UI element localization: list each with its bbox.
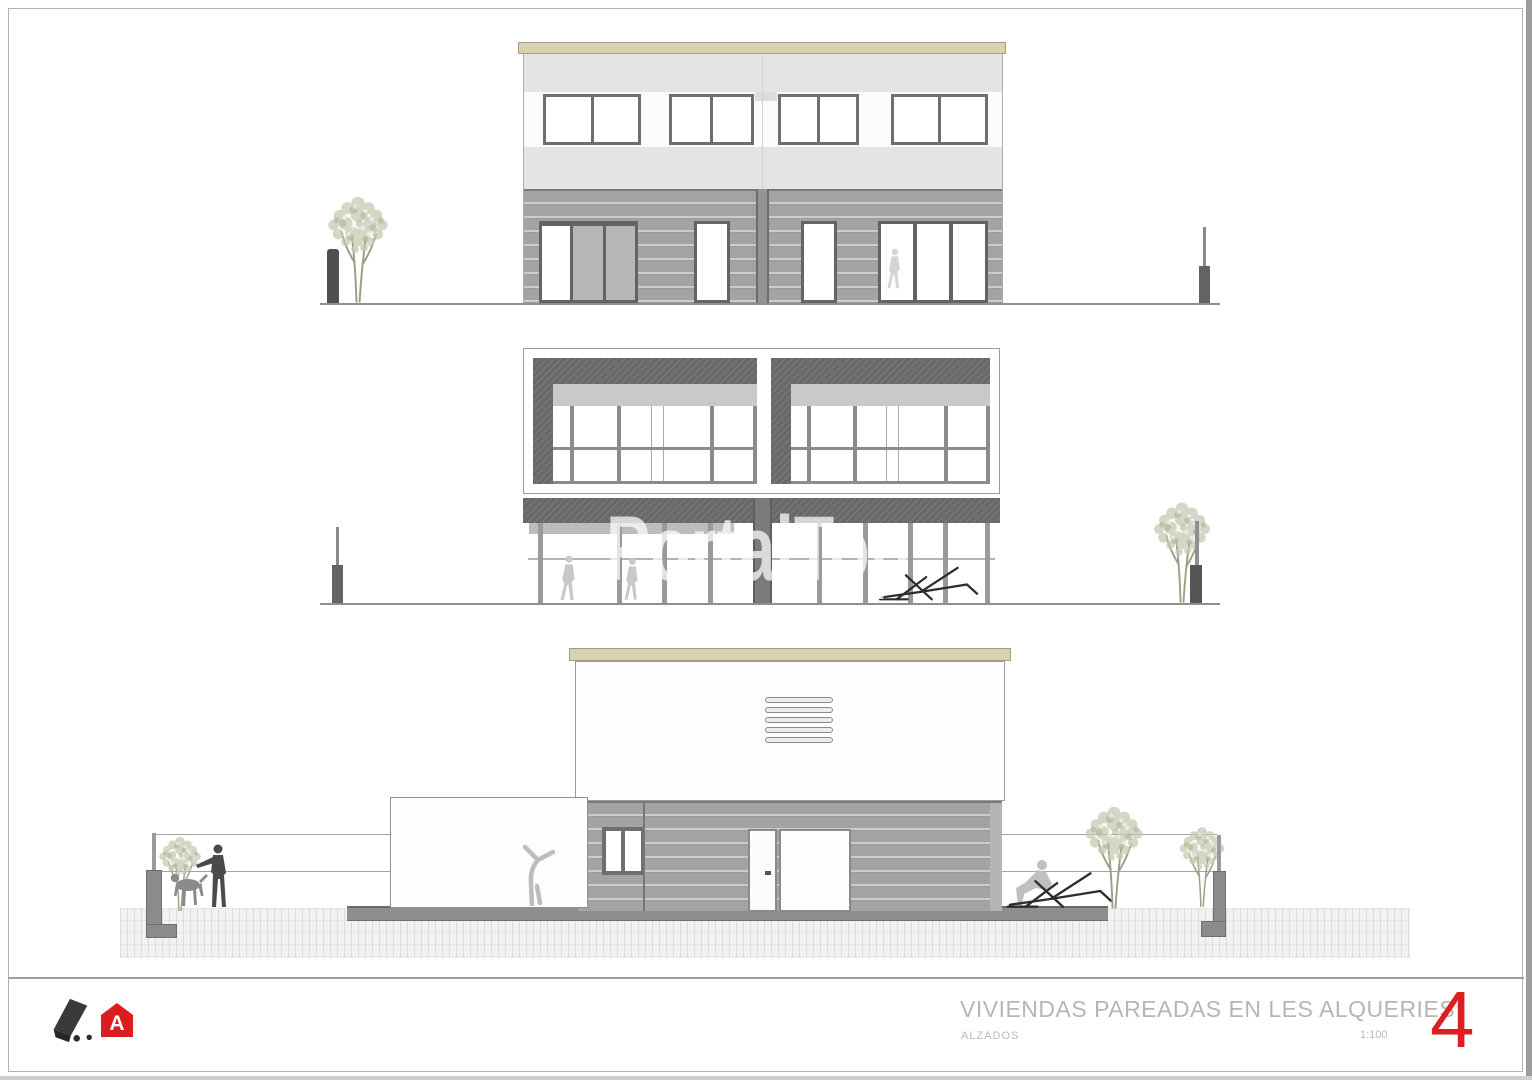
house-logo-icon: A: [100, 1002, 134, 1038]
mullion: [538, 523, 543, 603]
sheet-edge-right: [1526, 0, 1532, 1080]
sheet-subtitle: ALZADOS: [961, 1030, 1019, 1042]
handstand-person-icon: [503, 844, 565, 906]
project-title: VIVIENDAS PAREADAS EN LES ALQUERIES: [960, 996, 1455, 1023]
blind-box: [553, 384, 757, 406]
party-wall-post: [756, 189, 769, 303]
mullion: [807, 406, 811, 484]
mullion: [985, 523, 990, 603]
title-block-separator: [8, 977, 1524, 979]
mullion: [617, 406, 621, 484]
window: [543, 94, 641, 145]
mullion: [986, 406, 990, 484]
tree-icon: [1166, 822, 1238, 908]
lower-facade: [578, 801, 1002, 911]
window-mullion: [817, 97, 820, 142]
door-panel: [953, 224, 985, 300]
mullion: [853, 406, 857, 484]
door-leaf: [748, 829, 777, 912]
louver-slat: [765, 717, 833, 723]
glazing: [553, 406, 757, 484]
fence-post: [1217, 835, 1221, 871]
lamp-post-base: [1199, 266, 1210, 303]
recess-shadow: [771, 358, 791, 484]
sill: [791, 481, 990, 484]
louver-vent: [765, 697, 833, 747]
ground-line: [320, 303, 1220, 305]
transom: [791, 447, 990, 450]
door-handle: [765, 871, 771, 875]
garage-panel: [606, 226, 635, 300]
sheet-edge-bottom: [0, 1076, 1532, 1080]
watermark: PortalTop: [606, 497, 910, 602]
house-logo-letter: A: [109, 1012, 124, 1035]
louver-slat: [765, 727, 833, 733]
boundary-wall-footing: [1201, 921, 1226, 937]
window-bay: [771, 358, 990, 484]
door-panel: [917, 224, 949, 300]
window-mullion: [938, 97, 941, 142]
mullion: [753, 406, 757, 484]
drawing-sheet: PortalTop A VIVIENDAS PAREADAS EN LES AL…: [0, 0, 1532, 1080]
boundary-wall-section: [1213, 871, 1226, 922]
garage-door: [539, 221, 638, 303]
tree-icon: [1074, 800, 1154, 910]
person-with-dog-icon: [166, 843, 234, 909]
boundary-wall-footing: [146, 924, 177, 938]
architect-mark-icon: [44, 995, 94, 1045]
door-panel: [881, 224, 913, 300]
small-window: [602, 827, 645, 875]
tree-icon: [1141, 496, 1223, 604]
recess-shadow: [771, 358, 990, 384]
party-wall-line: [762, 56, 763, 189]
facade-return: [990, 803, 1002, 911]
garden-wall: [390, 797, 588, 908]
drawing-scale: 1:100: [1360, 1029, 1388, 1041]
glazed-door-group: [878, 221, 988, 303]
bollard-base: [1190, 565, 1202, 603]
window-mullion: [710, 97, 713, 142]
upper-band: [524, 54, 1002, 92]
bollard-icon: [1195, 521, 1199, 567]
louver-slat: [765, 707, 833, 713]
sill: [553, 481, 757, 484]
window: [669, 94, 754, 145]
louver-slat: [765, 697, 833, 703]
roof-band: [569, 648, 1011, 661]
wall-corner-line: [643, 803, 645, 911]
bollard-icon: [327, 249, 339, 303]
blind-box: [791, 384, 990, 406]
recess-shadow: [533, 358, 757, 384]
window-mullion: [591, 97, 594, 142]
mullion: [710, 406, 714, 484]
roof-band: [518, 42, 1006, 54]
entry-door: [694, 221, 730, 303]
window-bay: [533, 358, 757, 484]
mullion: [886, 406, 899, 484]
window: [891, 94, 988, 145]
person-silhouette-icon: [884, 238, 904, 300]
window-mullion: [621, 831, 625, 871]
recess-shadow: [533, 358, 553, 484]
mid-band: [524, 147, 1002, 189]
mullion: [651, 406, 664, 484]
sheet-number: 4: [1430, 980, 1475, 1060]
glazing: [791, 406, 990, 484]
door-glazed-panel: [779, 829, 851, 912]
garage-panel: [542, 226, 570, 300]
party-wall-cap: [755, 92, 777, 101]
mullion: [570, 406, 574, 484]
lamp-post-icon: [336, 527, 339, 567]
entry-door: [801, 221, 837, 303]
mullion: [944, 406, 948, 484]
building-front: [523, 54, 1003, 303]
window: [778, 94, 859, 145]
garage-panel: [573, 226, 602, 300]
transom: [553, 447, 757, 450]
lamp-post-base: [332, 565, 343, 603]
lamp-post-icon: [1203, 227, 1206, 268]
louver-slat: [765, 737, 833, 743]
person-silhouette-icon: [556, 555, 580, 602]
tree-icon: [312, 190, 404, 304]
